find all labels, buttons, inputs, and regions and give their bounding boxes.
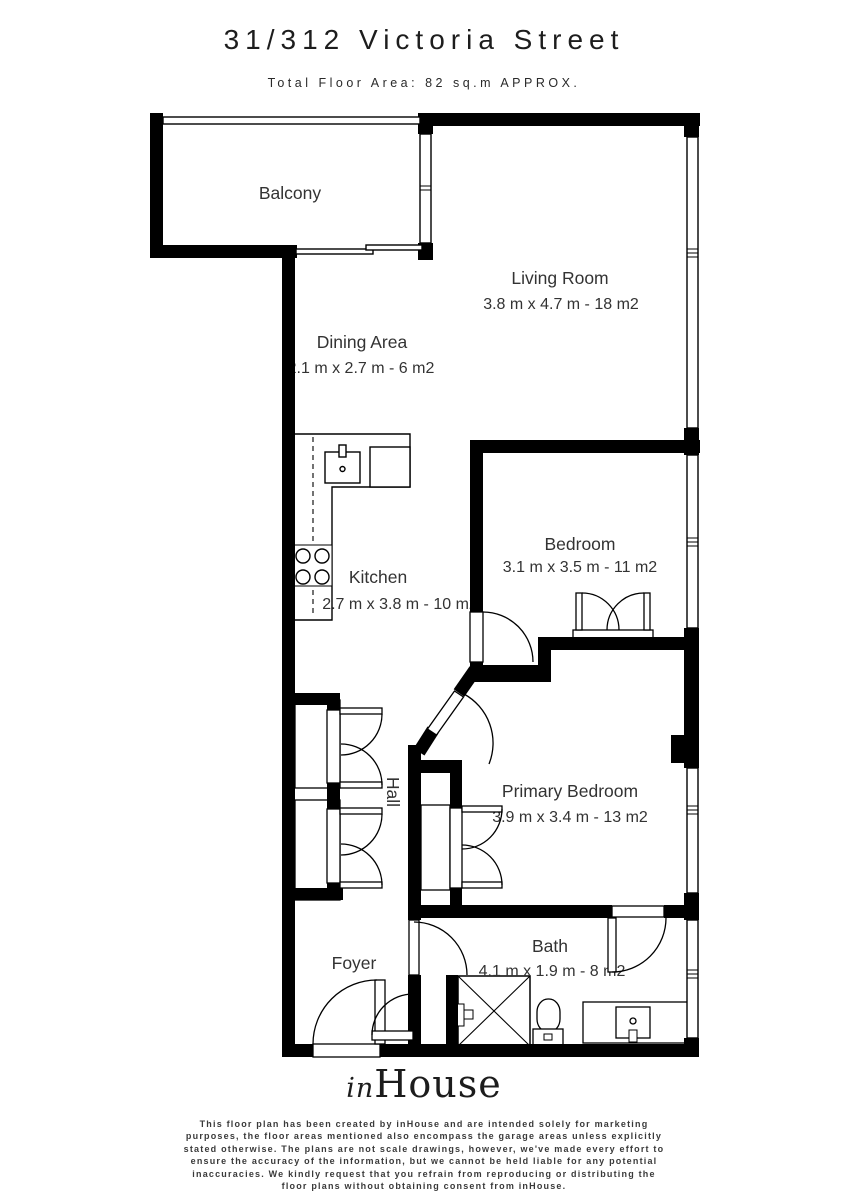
foyer-label: Foyer — [332, 953, 377, 973]
vanity — [583, 1002, 690, 1043]
balcony-right-window — [420, 134, 431, 243]
living-top-wall — [420, 113, 700, 126]
right-wall-block — [684, 1038, 699, 1057]
balcony-label: Balcony — [259, 183, 322, 203]
right-wall-block — [684, 628, 699, 768]
balcony-bottom-wall — [150, 245, 297, 258]
closet-door-swing — [607, 593, 644, 630]
closet-door-swing — [582, 593, 619, 630]
kitchen-label: Kitchen — [349, 567, 407, 587]
shower-side-wall — [446, 975, 458, 1047]
bath-dims: 4.1 m x 1.9 m - 8 m2 — [479, 963, 626, 980]
dining-area-label: Dining Area — [317, 332, 408, 352]
bath-top-wall — [421, 905, 612, 918]
bath-window — [687, 920, 698, 1038]
primary-door-swing — [464, 694, 493, 764]
floor-plan-page: 31/312 Victoria Street Total Floor Area:… — [0, 0, 848, 1200]
burner — [315, 570, 329, 584]
inhouse-logo: inHouse — [0, 1062, 848, 1106]
disclaimer-line: stated otherwise. The plans are not scal… — [144, 1143, 704, 1155]
primary-bedroom-label: Primary Bedroom — [502, 781, 638, 801]
burner — [296, 549, 310, 563]
sink-faucet — [339, 445, 346, 457]
bedroom-left-wall — [470, 440, 483, 612]
burner — [315, 549, 329, 563]
right-wall-block — [684, 113, 699, 137]
logo-in-script: in — [346, 1073, 374, 1104]
left-wall — [282, 253, 295, 1057]
primary-door-leaf — [428, 691, 464, 735]
bedroom-divider-lower — [470, 665, 543, 682]
disclaimer-line: ensure the accuracy of the information, … — [144, 1155, 704, 1167]
bath-door-swing — [414, 922, 467, 975]
disclaimer: This floor plan has been created by inHo… — [144, 1118, 704, 1192]
bedroom-door-leaf — [470, 612, 483, 662]
diagonal-stub-bottom — [419, 730, 433, 752]
flush-button — [544, 1034, 552, 1040]
kitchen-dims: 2.7 m x 3.8 m - 10 m2 — [322, 596, 478, 613]
disclaimer-line: This floor plan has been created by inHo… — [144, 1118, 704, 1130]
bedroom-top-wall — [470, 440, 700, 453]
bedroom-door-swing — [483, 612, 533, 662]
shower — [455, 976, 530, 1046]
floor-plan-drawing: Balcony Living Room 3.8 m x 4.7 m - 18 m… — [0, 0, 848, 1200]
disclaimer-line: floor plans without obtaining consent fr… — [144, 1180, 704, 1192]
shower-head — [464, 1010, 473, 1019]
hall-label: Hall — [383, 777, 403, 807]
primary-window — [687, 768, 698, 893]
entry-sill — [313, 1044, 380, 1057]
living-window — [687, 137, 698, 428]
burner — [296, 570, 310, 584]
disclaimer-line: inaccuracies. We kindly request that you… — [144, 1168, 704, 1180]
bath-door2-leaf — [608, 918, 616, 972]
bedroom-dims: 3.1 m x 3.5 m - 11 m2 — [503, 559, 658, 576]
dining-area-dims: 2.1 m x 2.7 m - 6 m2 — [288, 360, 435, 377]
bedroom-label: Bedroom — [544, 534, 615, 554]
primary-left-wall-upper — [450, 760, 462, 808]
sink-drain — [340, 467, 345, 472]
bath-left-wall — [408, 975, 421, 1057]
primary-closet-cavity — [421, 805, 450, 890]
kitchen-counter — [293, 434, 410, 620]
closet-door-swing — [462, 845, 502, 885]
disclaimer-line: purposes, the floor areas mentioned also… — [144, 1130, 704, 1142]
entry-door-swing — [313, 980, 377, 1044]
logo-house-serif: House — [374, 1062, 501, 1106]
balcony-sliding-door — [366, 245, 422, 250]
bottom-wall-left — [282, 1044, 313, 1057]
balcony-sliding-door — [296, 249, 373, 254]
living-room-label: Living Room — [511, 268, 608, 288]
diagonal-stub-top — [459, 670, 475, 693]
foyer-closet-leaf — [372, 1031, 413, 1040]
balcony-top-window — [163, 117, 420, 124]
bedroom-bottom-wall — [538, 637, 699, 650]
right-wall-block — [684, 893, 699, 920]
bottom-wall-right — [380, 1044, 699, 1057]
primary-bedroom-dims: 3.9 m x 3.4 m - 13 m2 — [492, 809, 648, 826]
vanity-faucet — [630, 1018, 636, 1024]
toilet — [533, 999, 563, 1046]
bath-label: Bath — [532, 936, 568, 956]
kitchen-appliance — [370, 447, 410, 487]
right-wall-pillar — [671, 735, 685, 763]
bath-door-leaf — [409, 920, 419, 975]
right-wall-block — [684, 428, 699, 455]
living-room-dims: 3.8 m x 4.7 m - 18 m2 — [483, 296, 639, 313]
balcony-left-wall — [150, 113, 163, 258]
